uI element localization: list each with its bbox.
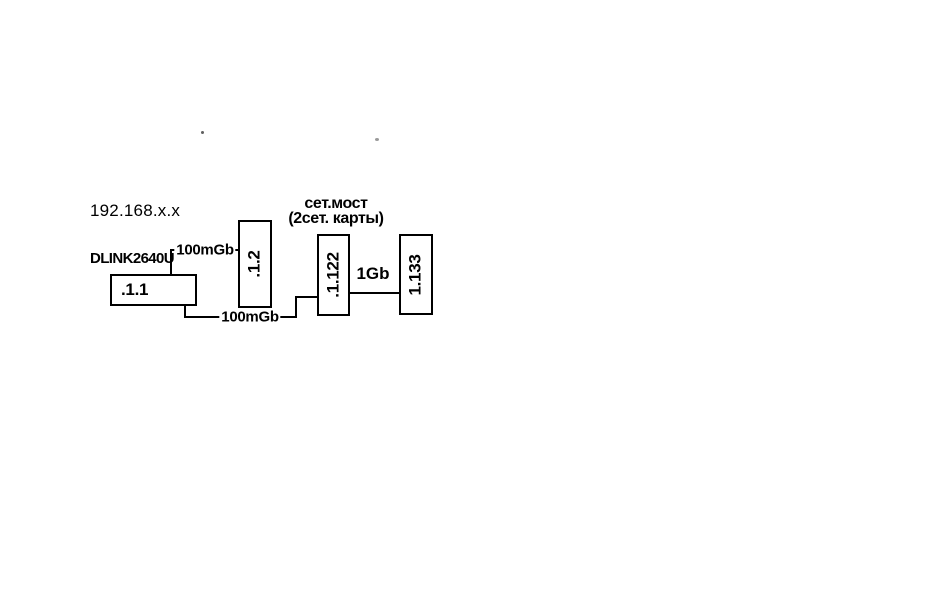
stray-dot (201, 131, 204, 134)
router-name-label: DLINK2640U (90, 250, 174, 267)
bridge-caption-line1: сет.мост (282, 196, 390, 211)
bridge-caption-line2: (2сет. карты) (282, 211, 390, 226)
node-pc-top-ip: .1.2 (245, 250, 265, 277)
node-router: .1.1 (110, 274, 197, 306)
link-speed-label-top: 100mGb (174, 242, 235, 259)
node-router-ip: .1.1 (112, 276, 195, 304)
stray-dot (375, 138, 379, 141)
link-router-bridge-stub (295, 296, 318, 298)
node-bridge: .1.122 (317, 234, 350, 316)
bridge-caption: сет.мост (2сет. карты) (282, 196, 390, 226)
link-router-pctop-riser (170, 250, 172, 275)
subnet-label: 192.168.x.x (90, 201, 180, 221)
node-pc-right: 1.133 (399, 234, 433, 315)
node-bridge-ip: .1.122 (324, 252, 344, 297)
link-speed-label-bottom: 100mGb (219, 309, 280, 326)
link-router-bridge-riser (295, 297, 297, 318)
node-pc-right-ip: 1.133 (406, 254, 426, 295)
link-speed-label-right: 1Gb (356, 264, 389, 284)
paint-canvas: 192.168.x.x DLINK2640U сет.мост (2сет. к… (0, 0, 945, 600)
node-pc-top: .1.2 (238, 220, 272, 308)
link-bridge-pcright-line (349, 292, 400, 294)
